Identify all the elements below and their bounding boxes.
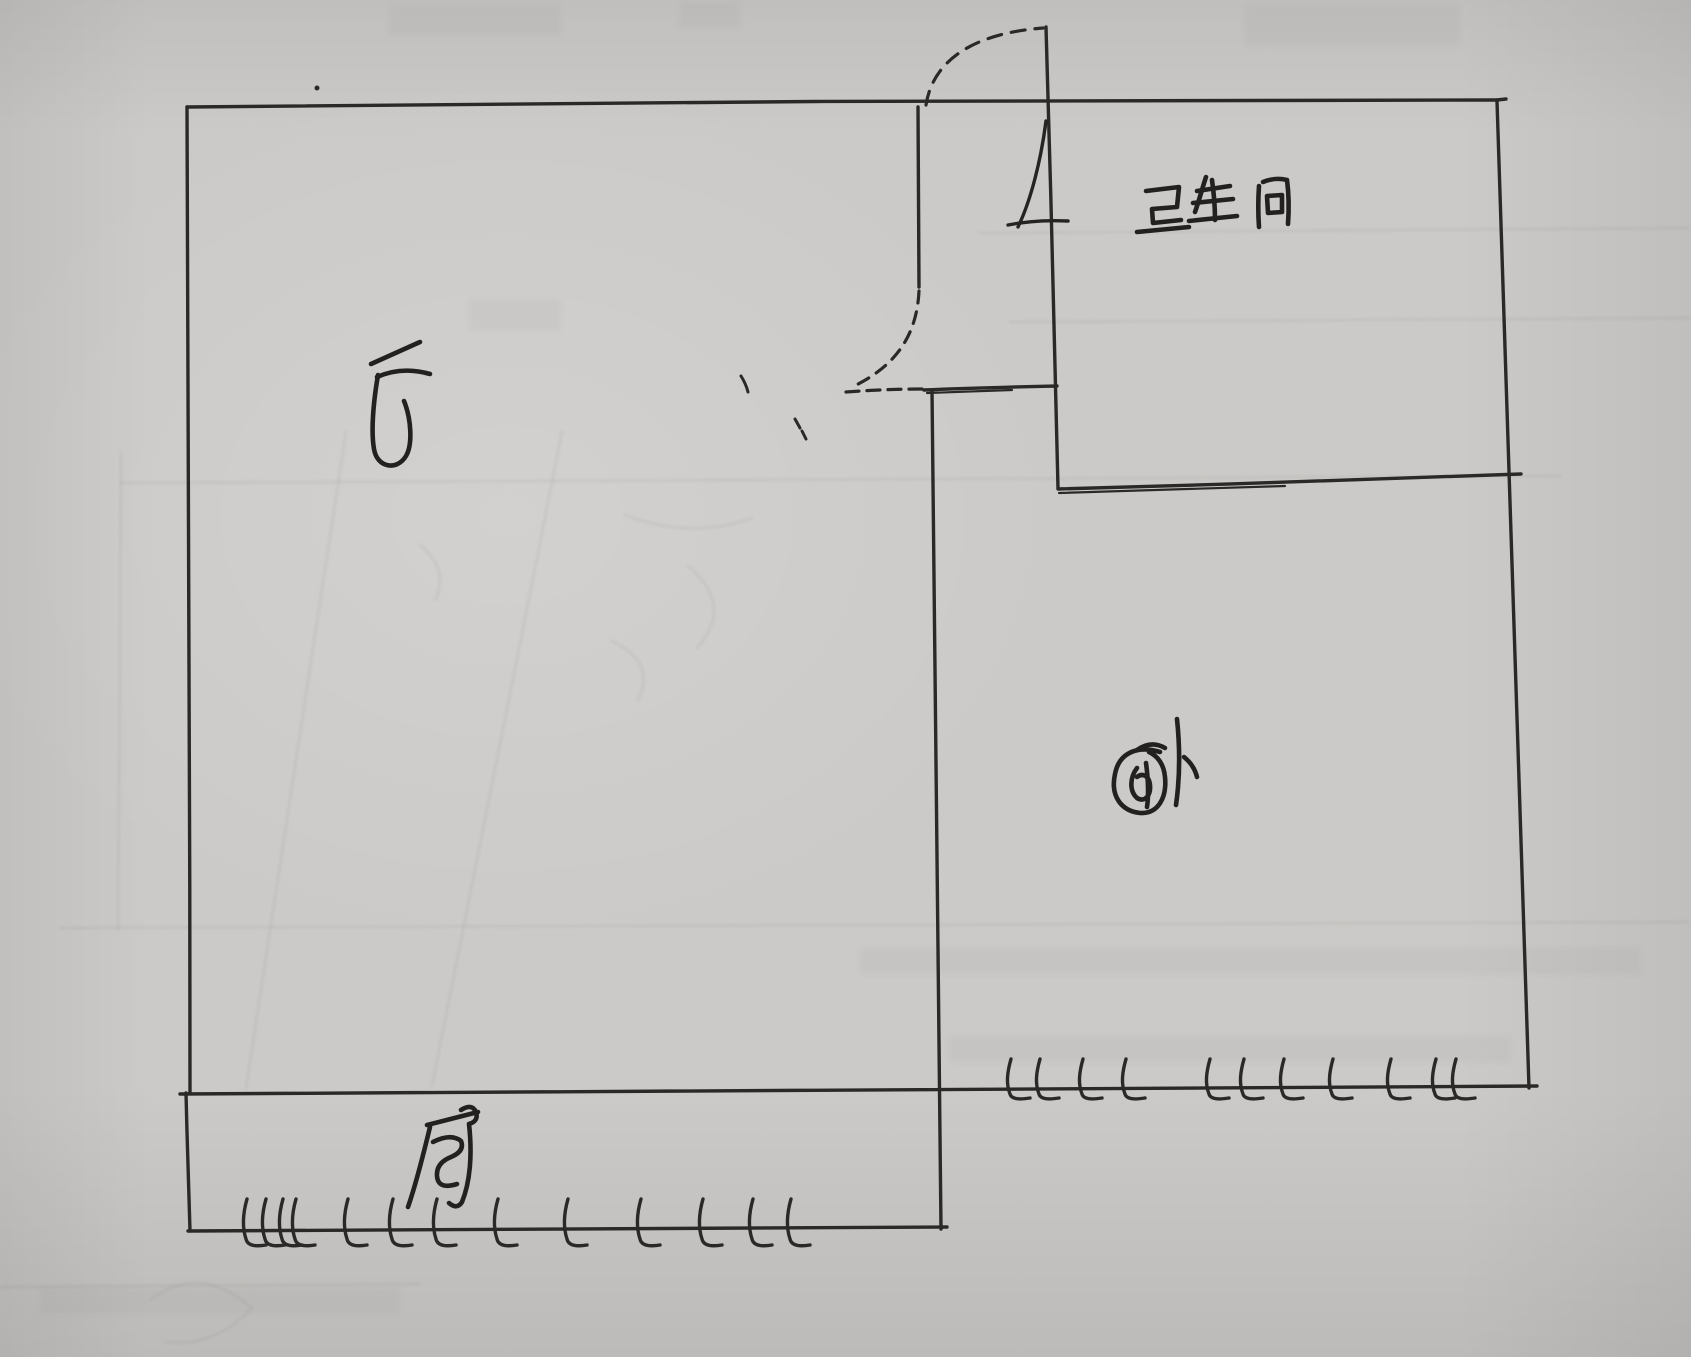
window-hatch-tick [292, 1199, 315, 1246]
hall-label-glyph [371, 342, 430, 466]
top-wall-corner-tick [1497, 99, 1506, 100]
bathroom-left-wall [1046, 27, 1058, 488]
bathroom-door-leaf [1008, 121, 1068, 227]
floor-plan-drawing [0, 0, 1691, 1357]
window-hatch-tick [1007, 1059, 1030, 1099]
window-hatch-tick [1387, 1059, 1410, 1099]
window-hatch-tick [1079, 1059, 1102, 1099]
window-hatch-tick [699, 1199, 722, 1246]
central-wall [932, 390, 941, 1229]
window-hatch-tick [749, 1199, 772, 1246]
window-hatch-tick [1452, 1059, 1475, 1099]
left-wall-lower [186, 1093, 190, 1231]
window-hatch-tick [1240, 1059, 1263, 1099]
bottom-long-wall [180, 1086, 1537, 1094]
window-hatch-tick [564, 1199, 587, 1246]
window-hatch-tick [279, 1199, 302, 1246]
bedroom-label-glyph [1114, 719, 1197, 813]
kitchen-label-glyph [408, 1107, 478, 1207]
window-hatch-tick [494, 1199, 517, 1246]
kitchen-window-hatches [243, 1199, 810, 1246]
inner-door-arc [846, 291, 924, 392]
left-wall-upper [187, 107, 190, 1093]
kitchen-bottom-wall [188, 1227, 947, 1231]
window-hatch-tick [1329, 1059, 1352, 1099]
window-hatch-tick [787, 1199, 810, 1246]
bathroom-label-glyph [1137, 177, 1289, 232]
window-hatch-tick [637, 1199, 660, 1246]
window-hatch-tick [1206, 1059, 1229, 1099]
entry-door-arc [926, 28, 1043, 105]
paper-sheet: 厅 卫生间 卧 厨 [0, 0, 1691, 1357]
window-hatch-tick [1280, 1059, 1303, 1099]
window-hatch-tick [1036, 1059, 1059, 1099]
corridor-top-wall [924, 386, 1057, 390]
top-wall [187, 100, 1497, 107]
window-hatch-tick [344, 1199, 367, 1246]
bedroom-window-hatches [1007, 1059, 1475, 1099]
stray-pen-marks [315, 86, 807, 440]
window-hatch-tick [1122, 1059, 1145, 1099]
ghost-marks [2, 2, 1690, 1343]
right-wall [1497, 101, 1529, 1088]
entry-jamb-wall [918, 107, 919, 287]
